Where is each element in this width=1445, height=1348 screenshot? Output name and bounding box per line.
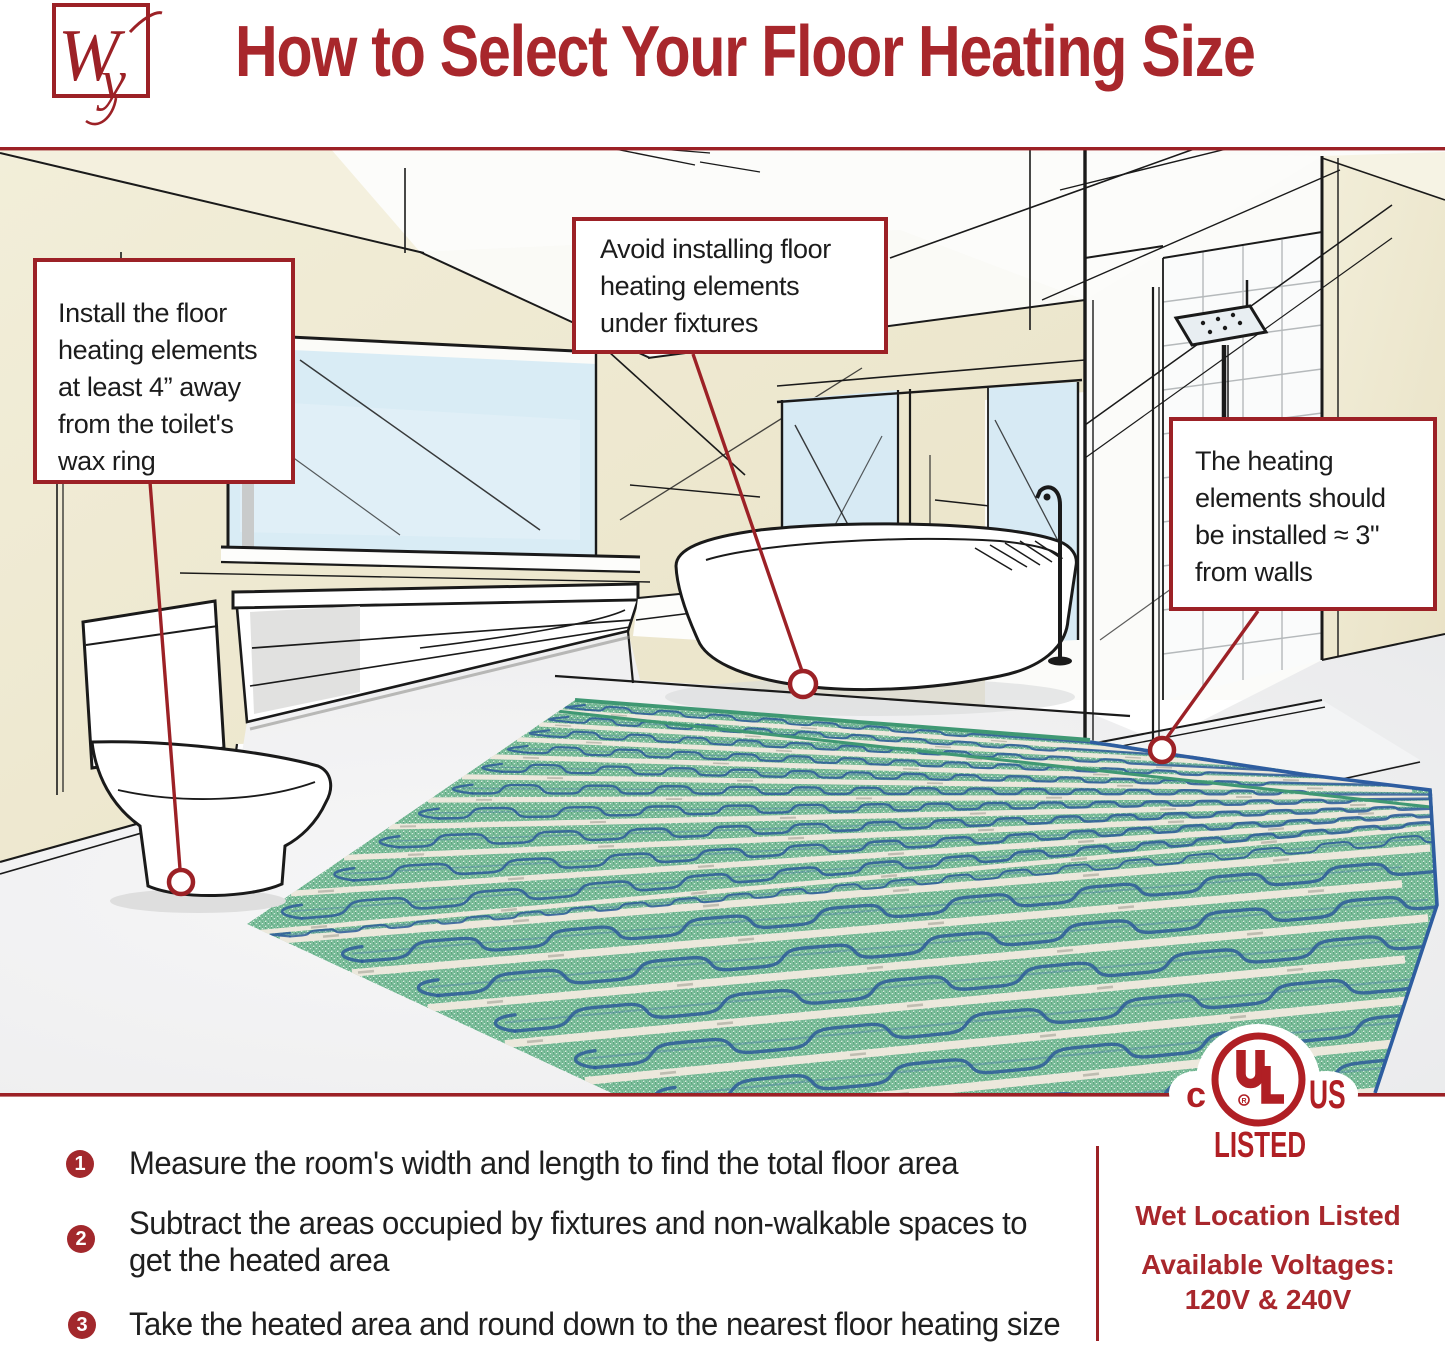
svg-text:US: US	[1309, 1073, 1346, 1118]
svg-text:y: y	[96, 50, 126, 112]
svg-text:c: c	[1186, 1074, 1206, 1115]
svg-text:R: R	[1242, 1098, 1247, 1105]
svg-text:LISTED: LISTED	[1214, 1125, 1306, 1165]
